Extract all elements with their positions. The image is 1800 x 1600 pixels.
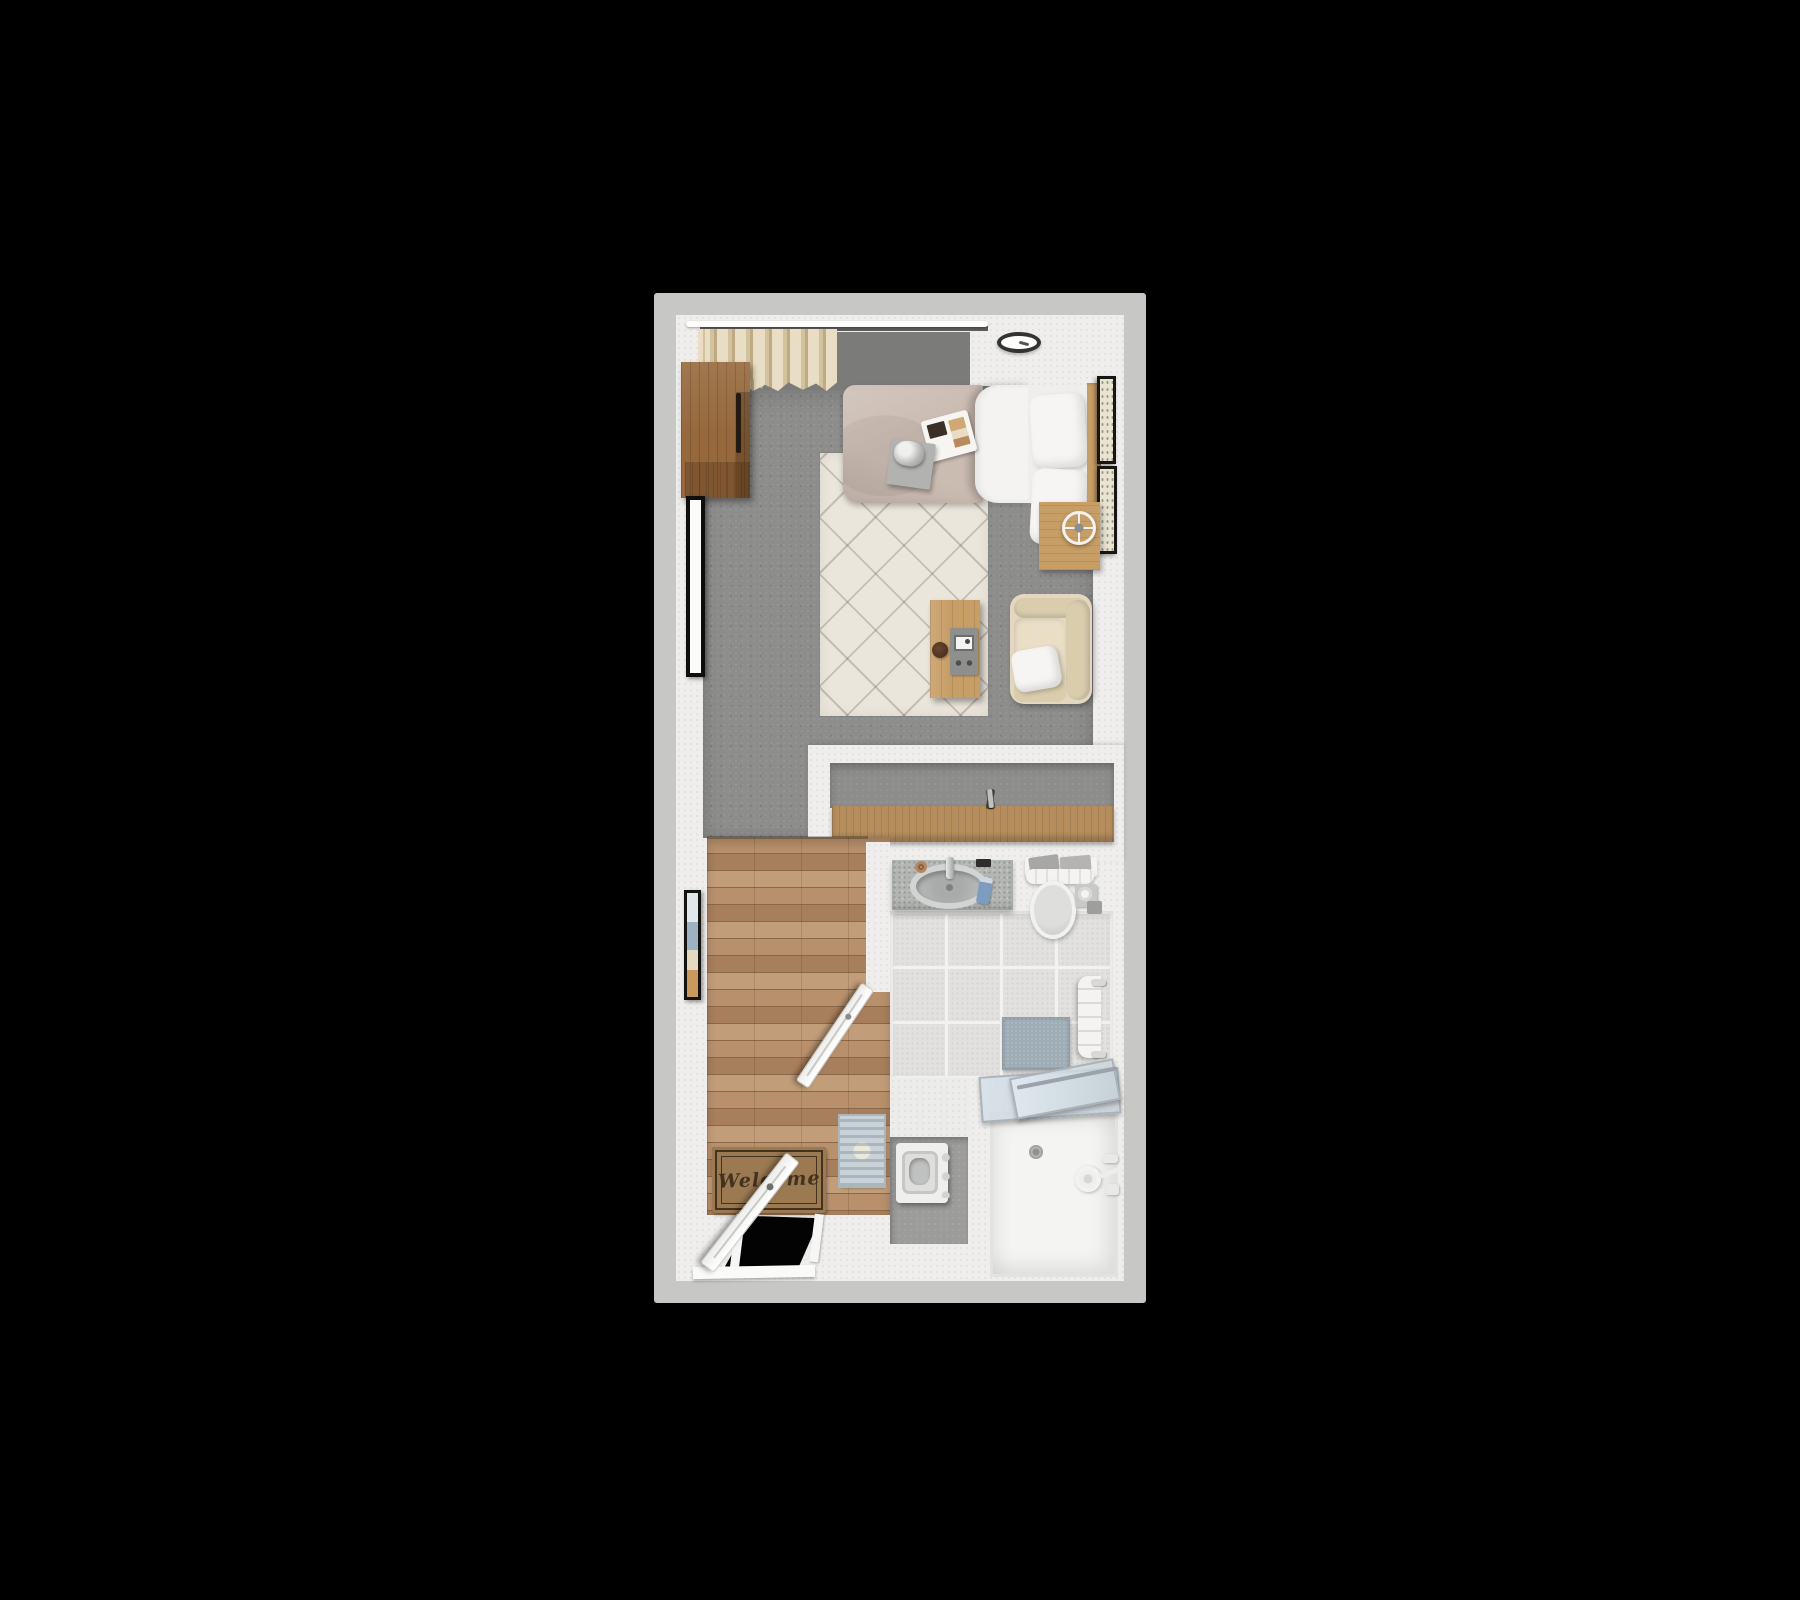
bathroom-floor-strip: [890, 1078, 970, 1138]
towel-bar-post: [1091, 1051, 1106, 1058]
floor-transition: [707, 836, 868, 839]
wall-mirror: [686, 496, 705, 677]
ceiling-light: [997, 332, 1041, 353]
framed-art: [684, 890, 701, 1000]
counter-item: [976, 859, 991, 867]
media-device-screen: [954, 635, 974, 651]
shower-pan: [990, 1112, 1118, 1277]
armchair-armrest: [1066, 600, 1090, 700]
washing-machine-drum: [909, 1158, 930, 1185]
towel-bar-post: [1091, 979, 1106, 986]
bed-pillow: [1028, 392, 1088, 470]
media-device-knobs: [953, 656, 975, 670]
wood-coaster: [932, 642, 948, 658]
framed-picture: [1097, 376, 1116, 464]
table-lamp: [1062, 511, 1096, 545]
bath-mat: [1002, 1017, 1070, 1070]
framed-picture: [1097, 466, 1117, 554]
curtain-rod: [686, 321, 988, 327]
runner-rug: [840, 1116, 884, 1186]
clothes-hangers: [988, 789, 1098, 813]
toilet-bowl: [1030, 881, 1076, 939]
shower-head: [1075, 1166, 1101, 1192]
bed-folded-sheet: [975, 385, 1032, 503]
hanging-towel: [1078, 976, 1101, 1058]
sink-faucet: [946, 857, 954, 879]
throw-pillow: [1010, 644, 1064, 694]
shower-valve: [1102, 1154, 1118, 1163]
floor-plan-scene: Welcome: [0, 0, 1800, 1600]
sink-stopper: [915, 861, 927, 873]
wall-bracket: [1087, 901, 1102, 914]
wardrobe-handle: [736, 393, 741, 453]
shower-valve: [1105, 1184, 1119, 1195]
bathroom-wall: [866, 842, 890, 992]
washing-machine-knobs: [941, 1148, 951, 1198]
shower-drain: [1029, 1145, 1043, 1159]
